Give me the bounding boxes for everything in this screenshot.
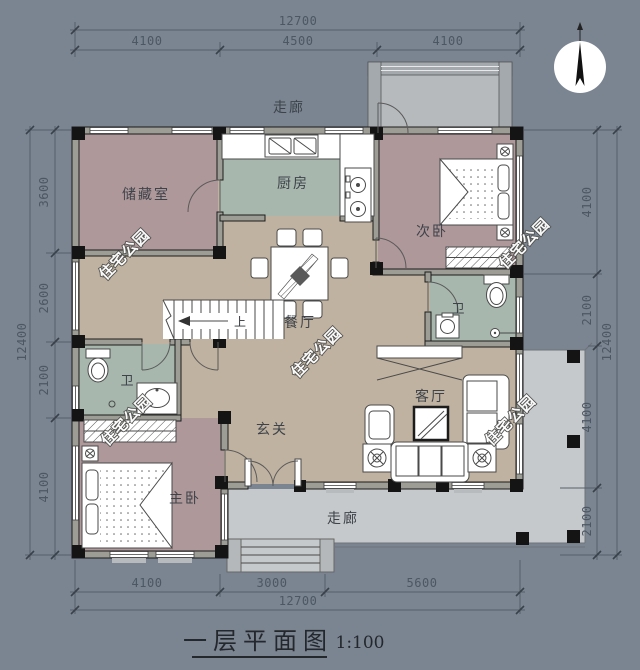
- nightstand-icon: [497, 144, 513, 159]
- room-label-bath-right: 卫: [451, 301, 464, 316]
- dim-right-total: 12400: [600, 323, 614, 362]
- nightstand-icon: [82, 446, 98, 461]
- drawing-scale: 1:100: [336, 633, 385, 653]
- room-label-kitchen: 厨房: [277, 175, 309, 191]
- window: [452, 483, 484, 494]
- room-label-bath-left: 卫: [120, 373, 133, 388]
- stairs-up-label: 上: [234, 315, 246, 329]
- window: [110, 552, 148, 564]
- window: [324, 483, 356, 494]
- drawing-title: 一层平面图: [183, 628, 333, 655]
- dim-right-4: 2100: [580, 506, 594, 537]
- dim-left-3: 2100: [37, 365, 51, 396]
- window: [73, 446, 79, 520]
- dim-bottom-3: 5600: [407, 576, 438, 590]
- room-label-storage: 储藏室: [122, 186, 170, 202]
- dim-top-total: 12700: [279, 14, 318, 28]
- dim-top-2: 4500: [283, 34, 314, 48]
- dim-left-2: 2600: [37, 283, 51, 314]
- kitchen-sink-icon: [265, 135, 318, 157]
- dim-right-1: 4100: [580, 187, 594, 218]
- floor-plan-page: 上: [0, 0, 640, 670]
- toilet-icon: [86, 349, 110, 382]
- window: [156, 552, 194, 564]
- dimension-left: 3600 2600 2100 4100 12400: [15, 126, 71, 560]
- nightstand-icon: [497, 225, 513, 240]
- dim-top-1: 4100: [132, 34, 163, 48]
- dim-left-total: 12400: [15, 323, 29, 362]
- window: [517, 424, 523, 474]
- stove-icon: [345, 168, 371, 222]
- room-label-living: 客厅: [415, 388, 447, 404]
- dimension-top: 12700 4100 4500 4100: [70, 14, 525, 57]
- room-label-master: 主卧: [169, 490, 201, 506]
- coffee-table: [414, 407, 448, 440]
- master-bedroom-furniture: [82, 420, 176, 548]
- room-label-porch-bottom: 走廊: [327, 510, 359, 526]
- bed-second: [440, 159, 513, 225]
- dim-bottom-2: 3000: [257, 576, 288, 590]
- window: [230, 128, 264, 134]
- top-porch: [368, 62, 512, 133]
- washbasin-icon: [436, 313, 459, 338]
- sofa-three-seat: [391, 442, 469, 482]
- compass-north-arrow-icon: [554, 22, 606, 93]
- window: [517, 297, 523, 333]
- title-block: 一层平面图 1:100: [183, 628, 385, 657]
- window: [517, 156, 523, 242]
- dim-top-3: 4100: [433, 34, 464, 48]
- bed-master: [82, 463, 172, 548]
- window: [172, 128, 212, 134]
- window: [325, 128, 363, 134]
- side-table-plant-icon: [363, 444, 391, 472]
- dim-bottom-1: 4100: [132, 576, 163, 590]
- entry-steps: [227, 539, 334, 572]
- window: [222, 494, 228, 540]
- window: [73, 262, 79, 330]
- window: [517, 354, 523, 402]
- room-label-dining: 餐厅: [284, 314, 316, 330]
- dim-left-4: 4100: [37, 472, 51, 503]
- window: [90, 128, 128, 134]
- armchair: [365, 405, 394, 445]
- dim-right-3: 4100: [580, 402, 594, 433]
- window: [438, 128, 492, 134]
- room-label-corridor-top: 走廊: [273, 99, 305, 115]
- dim-bottom-total: 12700: [279, 594, 318, 608]
- stairs: 上: [163, 300, 284, 339]
- floor-plan-drawing: 上: [0, 0, 640, 670]
- dim-right-2: 2100: [580, 295, 594, 326]
- dim-left-1: 3600: [37, 177, 51, 208]
- room-label-foyer: 玄关: [256, 421, 288, 437]
- bedroom-second-furniture: [440, 144, 513, 268]
- room-label-bedroom-second: 次卧: [416, 223, 448, 239]
